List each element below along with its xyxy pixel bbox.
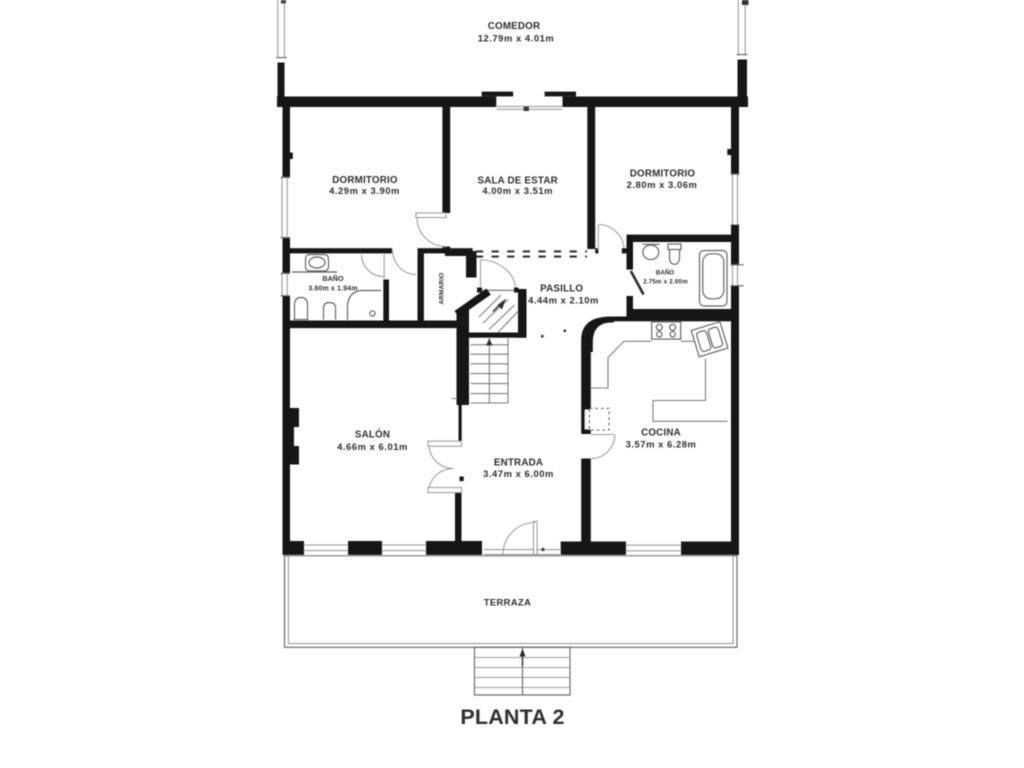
svg-text:ENTRADA: ENTRADA (494, 458, 543, 469)
svg-text:3.57m x 6.28m: 3.57m x 6.28m (626, 439, 697, 450)
svg-text:PLANTA 2: PLANTA 2 (460, 705, 564, 729)
svg-text:4.00m x 3.51m: 4.00m x 3.51m (482, 185, 553, 196)
svg-text:TERRAZA: TERRAZA (484, 597, 532, 608)
svg-text:DORMITORIO: DORMITORIO (630, 169, 696, 180)
svg-text:4.66m x 6.01m: 4.66m x 6.01m (337, 441, 408, 452)
svg-text:COCINA: COCINA (641, 428, 681, 439)
svg-text:3.60m x 1.94m: 3.60m x 1.94m (308, 286, 357, 293)
svg-text:SALÓN: SALÓN (355, 429, 390, 441)
svg-text:2.80m x 3.06m: 2.80m x 3.06m (627, 179, 698, 190)
svg-text:2.75m x 2.00m: 2.75m x 2.00m (643, 279, 688, 286)
svg-text:3.47m x 6.00m: 3.47m x 6.00m (483, 468, 554, 479)
svg-text:12.79m x 4.01m: 12.79m x 4.01m (478, 33, 555, 44)
svg-text:4.29m x 3.90m: 4.29m x 3.90m (329, 185, 400, 196)
svg-text:PASILLO: PASILLO (540, 284, 583, 295)
svg-text:BAÑO: BAÑO (322, 274, 344, 283)
svg-text:ARMARIO: ARMARIO (439, 273, 446, 305)
svg-text:4.44m x 2.10m: 4.44m x 2.10m (528, 295, 599, 306)
svg-text:BAÑO: BAÑO (656, 270, 674, 277)
svg-text:COMEDOR: COMEDOR (488, 21, 541, 32)
